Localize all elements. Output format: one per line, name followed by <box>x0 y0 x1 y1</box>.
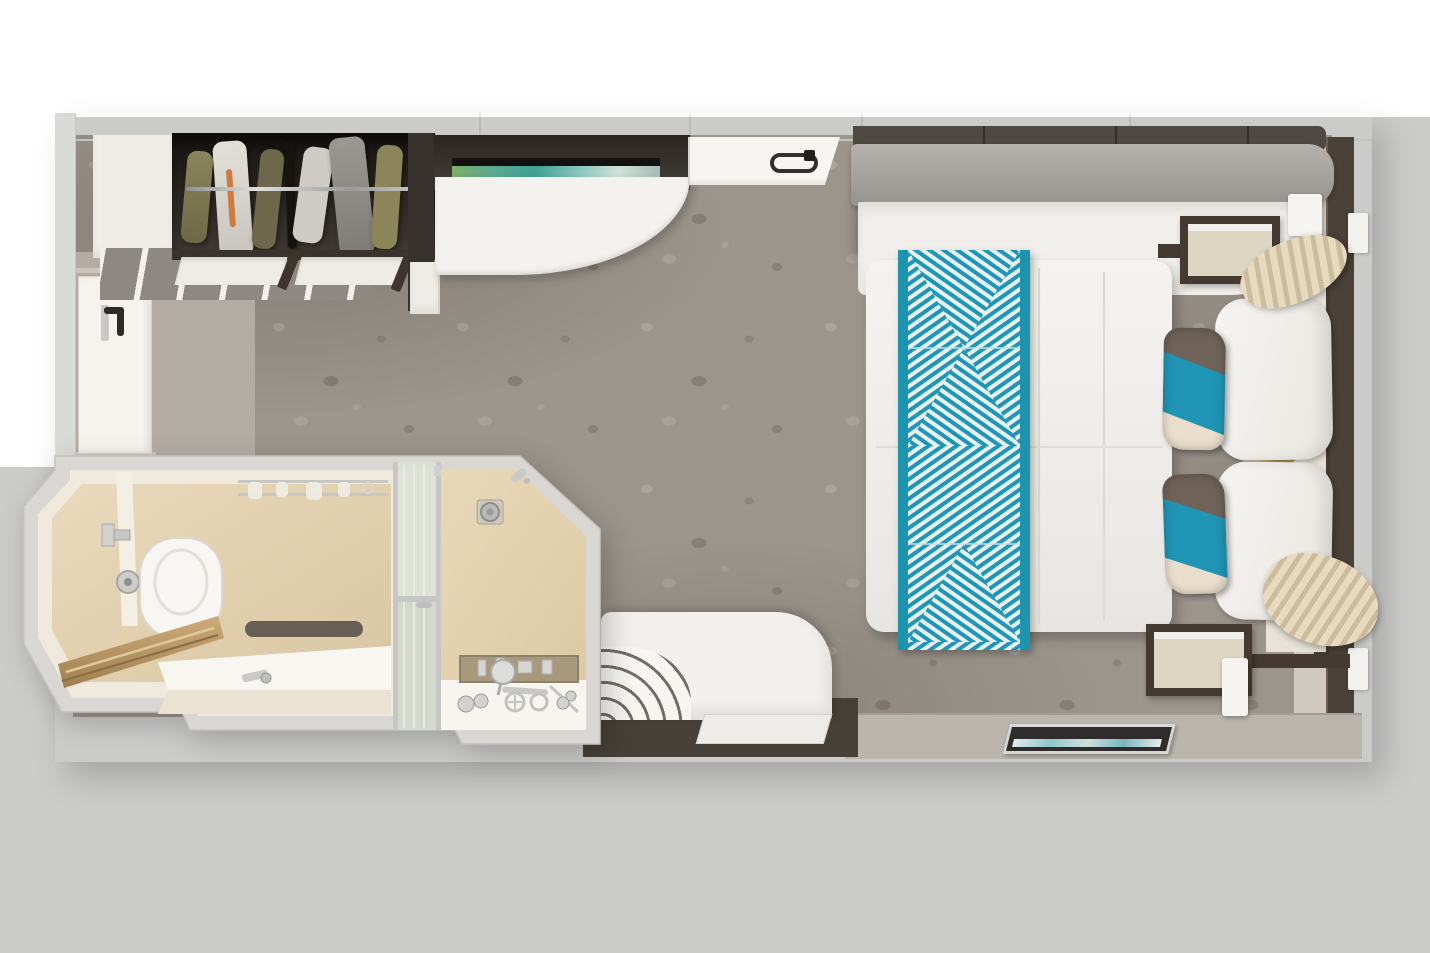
garment-gray-coat <box>328 135 376 256</box>
pillow-white-1 <box>1215 297 1334 461</box>
shelf-panel-2 <box>295 257 404 285</box>
closet-interior[interactable] <box>172 133 435 255</box>
window-sill-top <box>1348 213 1368 253</box>
toiletry-niche <box>460 656 578 682</box>
floorplan-canvas <box>0 0 1430 953</box>
wardrobe-cabinet[interactable] <box>93 135 174 258</box>
shower-door[interactable] <box>393 462 443 730</box>
floor-drain <box>477 500 503 524</box>
picture-art <box>1012 739 1162 747</box>
framed-picture <box>1002 724 1175 754</box>
runner-edge-left <box>898 250 908 650</box>
window-sill-bottom <box>1348 648 1368 690</box>
background-left <box>0 117 57 467</box>
garment-olive-2 <box>251 148 285 250</box>
counter-front <box>158 690 391 714</box>
artwork-frame-edge <box>452 158 660 166</box>
background-top <box>0 0 1430 117</box>
garment-white-shirt <box>212 140 254 258</box>
accent-pillow-1 <box>1162 327 1226 450</box>
shower-door-handle[interactable] <box>416 602 432 608</box>
wall-sconce-bottom <box>1222 658 1248 716</box>
accent-pillow-2 <box>1162 473 1228 595</box>
garment-olive-1 <box>180 150 214 244</box>
shelf-panel-1 <box>175 257 288 285</box>
berth-cushion[interactable] <box>851 144 1334 206</box>
runner-edge-right <box>1020 250 1030 650</box>
bathroom <box>18 450 608 755</box>
toilet-paper-holder <box>117 571 139 593</box>
door-handle-lever[interactable] <box>117 308 124 336</box>
magnifying-mirror <box>491 660 515 684</box>
wall-sconce-top <box>1288 194 1322 236</box>
bathroom-plan <box>18 450 608 755</box>
floor-mat <box>696 714 833 744</box>
entry-door[interactable] <box>78 276 152 454</box>
garment-olive-3 <box>370 144 403 250</box>
pullman-panel[interactable] <box>688 137 840 185</box>
garment-white-2 <box>291 145 334 244</box>
bed-runner <box>898 250 1030 650</box>
pullman-latch <box>804 150 815 161</box>
garment-orange-stripe <box>226 169 236 227</box>
folded-towel <box>245 621 363 637</box>
closet-rail <box>186 187 422 191</box>
wall-left <box>55 113 76 460</box>
